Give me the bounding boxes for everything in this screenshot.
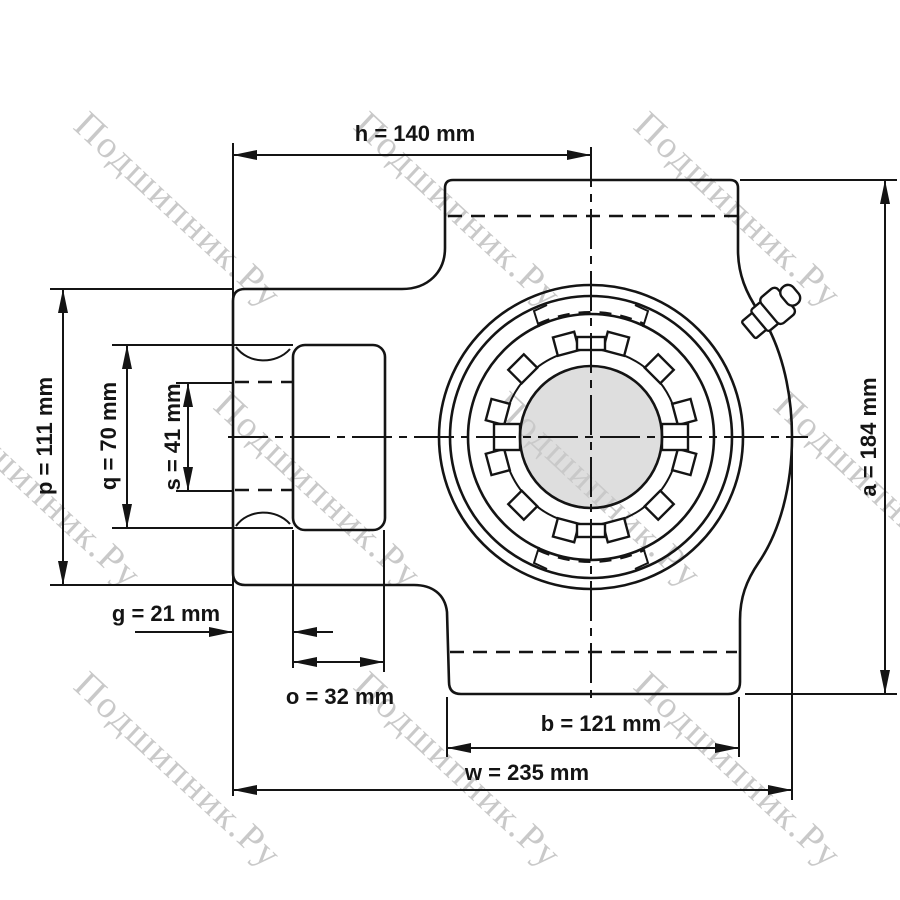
dimension-label-w: w = 235 mm bbox=[464, 760, 589, 785]
dimension-label-p: p = 111 mm bbox=[32, 377, 57, 495]
dimension-label-s: s = 41 mm bbox=[160, 383, 185, 490]
dimension-label-h: h = 140 mm bbox=[355, 121, 475, 146]
dimension-label-q: q = 70 mm bbox=[96, 382, 121, 490]
bearing-unit-drawing: Подшипник.Ру Подшипник.Ру Подшипник.Ру П… bbox=[0, 0, 900, 900]
dimension-label-a: a = 184 mm bbox=[856, 377, 881, 496]
dimension-label-g: g = 21 mm bbox=[112, 601, 220, 626]
dimension-label-o: o = 32 mm bbox=[286, 684, 394, 709]
dimension-label-b: b = 121 mm bbox=[541, 711, 661, 736]
technical-drawing-page: Подшипник.Ру Подшипник.Ру Подшипник.Ру П… bbox=[0, 0, 900, 900]
